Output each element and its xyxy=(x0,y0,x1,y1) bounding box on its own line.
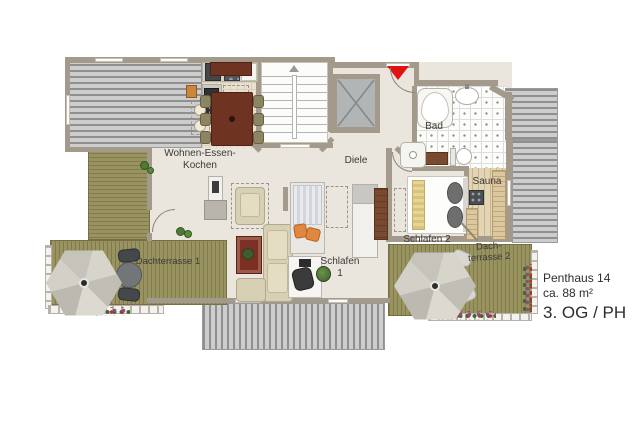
label-bedroom1-line1: Schlafen xyxy=(321,256,360,267)
wall-kitchen-bottom xyxy=(65,147,152,152)
roof-bottom-center xyxy=(202,303,385,350)
rug-plant xyxy=(242,248,254,260)
parasol-pole xyxy=(430,281,440,291)
bathtub-basin xyxy=(421,92,449,124)
floor-plan: Wohnen-Essen- Kochen Diele Bad Sauna Sch… xyxy=(0,0,640,432)
dining-chair xyxy=(200,113,211,126)
roof-top-left xyxy=(67,57,202,148)
wall-right xyxy=(506,92,512,242)
window-kitchen-left xyxy=(66,95,70,125)
terrace2-flower-box-right xyxy=(523,264,532,312)
label-living-line1: Wohnen-Essen- xyxy=(164,148,236,159)
tall-cabinet xyxy=(374,188,388,240)
sauna-heater xyxy=(469,190,484,205)
elevator-shaft xyxy=(332,74,380,132)
wall-living-left-lower xyxy=(147,233,152,241)
info-title: Penthaus 14 xyxy=(543,271,638,286)
stair-up-arrow-icon xyxy=(289,65,299,72)
label-terrace1: Dachterrasse 1 xyxy=(128,256,208,267)
dining-chair xyxy=(253,131,264,144)
label-terrace2: Dach- terrasse 2 xyxy=(459,239,518,264)
plant-bush xyxy=(184,230,192,238)
info-area: ca. 88 m² xyxy=(543,286,638,301)
label-living: Wohnen-Essen- Kochen xyxy=(160,148,240,172)
dining-chair xyxy=(200,95,211,108)
shower-drain xyxy=(409,151,417,159)
bedroom2-pillow xyxy=(447,182,463,204)
sofa-cushion xyxy=(267,263,288,293)
parasol-pole xyxy=(79,278,89,288)
label-terrace2-line2: terrasse 2 xyxy=(468,251,511,264)
label-bedroom1: Schlafen 1 xyxy=(318,256,362,280)
wall-living-left-upper xyxy=(147,152,152,210)
sink-tap xyxy=(465,84,469,89)
laptop xyxy=(299,259,311,267)
bedroom1-wardrobe-dashed xyxy=(326,186,348,228)
toilet-icon xyxy=(456,148,472,165)
plant-bush xyxy=(147,167,154,174)
kitchen-wall-art xyxy=(186,85,197,98)
label-bedroom2: Schlafen 2 xyxy=(398,234,456,246)
dining-chair xyxy=(253,113,264,126)
window-kitchen-top-1 xyxy=(95,58,123,62)
window-living-bottom-2 xyxy=(328,299,348,303)
stairwell xyxy=(261,62,328,143)
armchair-cushion xyxy=(240,193,260,217)
label-living-line2: Kochen xyxy=(183,160,217,171)
window-stair-bay xyxy=(280,144,310,148)
label-bedroom1-line2: 1 xyxy=(337,268,343,279)
dining-table-center xyxy=(229,116,235,122)
stair-divider xyxy=(292,75,297,139)
info-block: Penthaus 14 ca. 88 m² 3. OG / PH xyxy=(543,271,638,323)
bedroom2-pillow xyxy=(447,206,463,228)
sofa-horizontal xyxy=(236,278,266,302)
fireplace-base xyxy=(204,200,227,220)
sideboard xyxy=(210,62,252,76)
roof-right-lower xyxy=(512,140,558,243)
sink-icon xyxy=(455,87,479,105)
terrace1-chair xyxy=(117,287,140,302)
bedroom1-duvet xyxy=(293,185,322,225)
bedroom2-dashed-outline xyxy=(394,188,406,232)
wall-bath-top xyxy=(414,80,498,86)
sofa-cushion xyxy=(267,230,288,260)
bedroom2-runner xyxy=(412,180,425,230)
dining-chair xyxy=(200,131,211,144)
elevator-x-icon xyxy=(337,79,375,127)
wall-living-bedroom1-stub-top xyxy=(283,187,288,211)
label-sauna: Sauna xyxy=(465,176,509,188)
terrace2-railing-right xyxy=(531,250,538,314)
label-hall: Diele xyxy=(336,155,376,167)
info-floor: 3. OG / PH xyxy=(543,302,638,323)
window-kitchen-top-2 xyxy=(160,58,188,62)
fireplace-slot xyxy=(212,181,219,193)
label-bath: Bad xyxy=(416,121,452,133)
dining-chair xyxy=(253,95,264,108)
